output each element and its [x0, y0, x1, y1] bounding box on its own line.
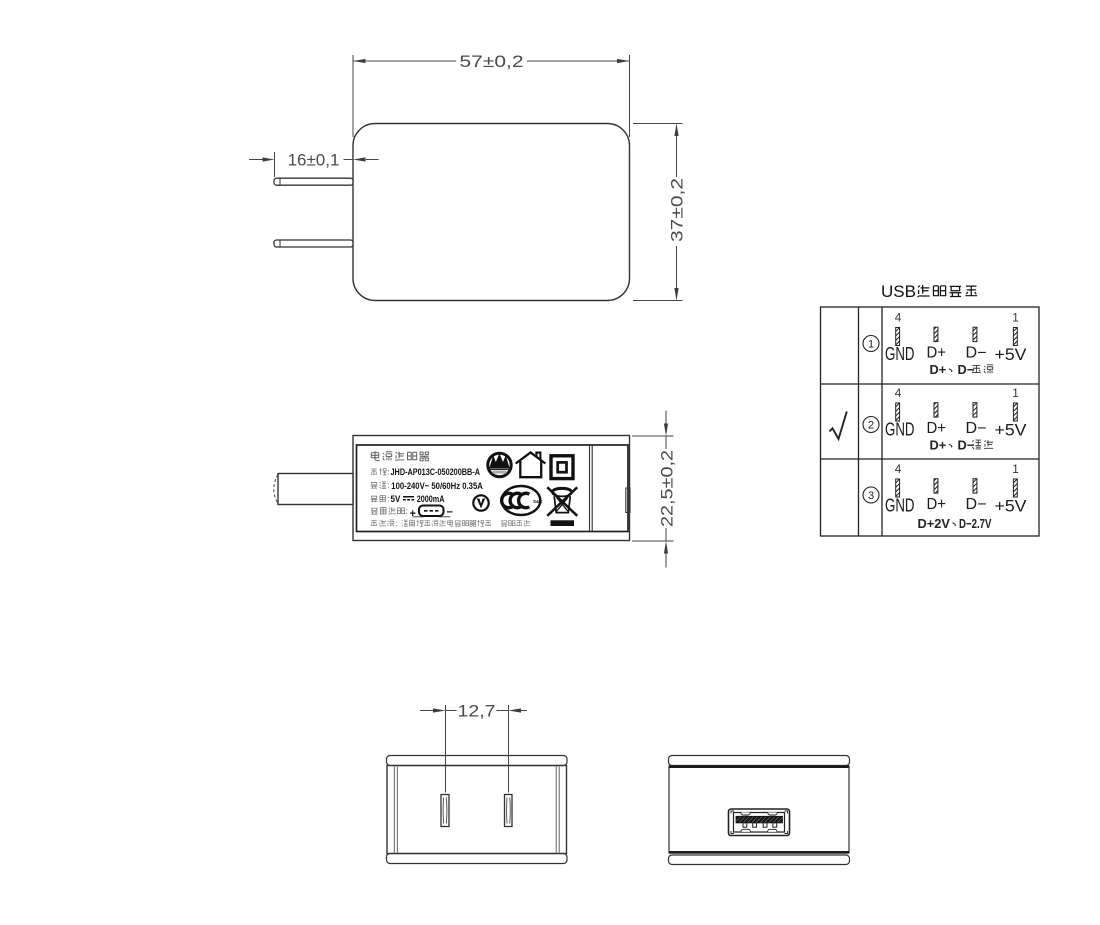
- svg-text:D−2.7V: D−2.7V: [959, 516, 992, 531]
- svg-text:−: −: [447, 507, 453, 519]
- svg-text:5V: 5V: [391, 494, 401, 504]
- svg-text:D−: D−: [958, 438, 975, 453]
- svg-text:22,5±0,2: 22,5±0,2: [658, 450, 677, 527]
- svg-text:4: 4: [895, 311, 902, 325]
- svg-text::: :: [388, 495, 390, 504]
- svg-text:2: 2: [868, 420, 874, 432]
- svg-text:D−: D−: [966, 345, 987, 362]
- svg-text::: :: [388, 481, 390, 490]
- svg-text:D+: D+: [930, 438, 947, 453]
- svg-text:2000mA: 2000mA: [417, 494, 445, 504]
- svg-text:D+2V: D+2V: [918, 516, 951, 531]
- svg-text:1: 1: [1012, 311, 1019, 325]
- svg-text:JHD-AP013C-050200BB-A: JHD-AP013C-050200BB-A: [391, 467, 481, 477]
- svg-text:D+: D+: [927, 345, 947, 362]
- svg-text:100-240V~ 50/60Hz 0.35A: 100-240V~ 50/60Hz 0.35A: [391, 481, 483, 491]
- svg-text:37±0,2: 37±0,2: [668, 178, 687, 242]
- svg-text:D+: D+: [930, 362, 947, 377]
- svg-text:+5V: +5V: [995, 345, 1028, 364]
- svg-text:12,7: 12,7: [458, 702, 496, 721]
- svg-text::: :: [388, 468, 390, 477]
- svg-text:S&E: S&E: [533, 499, 542, 504]
- svg-text:USB: USB: [881, 282, 916, 301]
- svg-text:1: 1: [868, 339, 874, 351]
- svg-text::: :: [406, 506, 408, 516]
- svg-text:3: 3: [868, 490, 874, 502]
- svg-text:+: +: [410, 508, 416, 520]
- svg-text::: :: [395, 519, 397, 528]
- svg-text:D−: D−: [958, 362, 975, 377]
- svg-text:GND: GND: [885, 344, 915, 364]
- svg-text:57±0,2: 57±0,2: [460, 52, 524, 71]
- svg-text:16±0,1: 16±0,1: [288, 151, 340, 170]
